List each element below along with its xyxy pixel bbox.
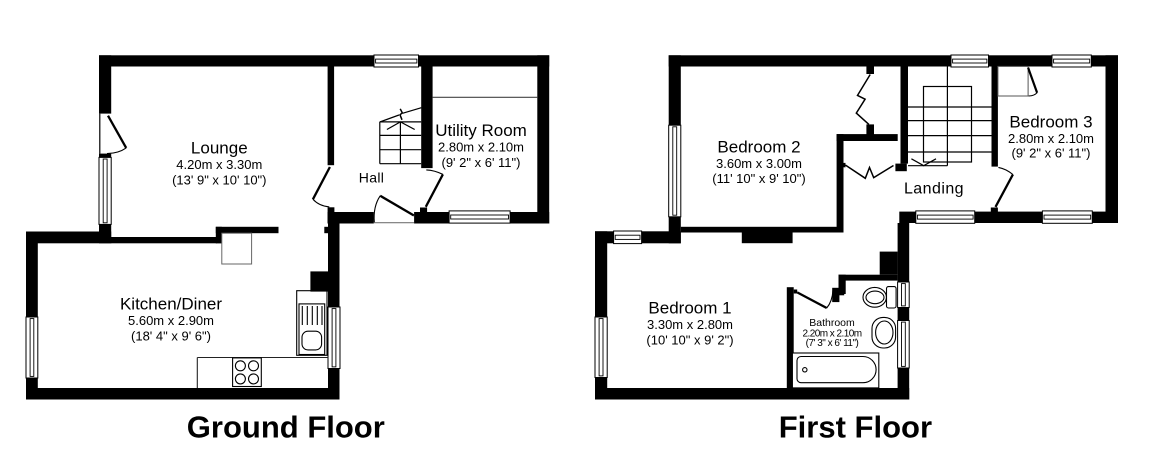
svg-text:2.80m x 2.10m: 2.80m x 2.10m — [1008, 131, 1094, 146]
svg-text:Landing: Landing — [904, 180, 964, 197]
svg-text:Bedroom 2: Bedroom 2 — [717, 138, 800, 157]
svg-text:Bedroom 3: Bedroom 3 — [1009, 112, 1092, 131]
svg-text:Lounge: Lounge — [191, 139, 248, 158]
svg-text:3.60m x 3.00m: 3.60m x 3.00m — [716, 156, 802, 171]
svg-text:(9' 2" x 6' 11"): (9' 2" x 6' 11") — [442, 155, 521, 170]
svg-text:Bathroom: Bathroom — [809, 317, 855, 329]
svg-text:First Floor: First Floor — [779, 410, 932, 445]
svg-text:3.30m x 2.80m: 3.30m x 2.80m — [647, 317, 733, 332]
svg-text:(11' 10" x 9' 10"): (11' 10" x 9' 10") — [712, 171, 805, 186]
svg-text:(9' 2" x 6' 11"): (9' 2" x 6' 11") — [1012, 146, 1091, 161]
svg-text:Hall: Hall — [359, 170, 385, 186]
svg-text:Kitchen/Diner: Kitchen/Diner — [120, 295, 222, 314]
svg-text:(7' 3" x 6' 11"): (7' 3" x 6' 11") — [806, 338, 859, 349]
svg-text:5.60m x 2.90m: 5.60m x 2.90m — [128, 313, 214, 328]
svg-text:4.20m x 3.30m: 4.20m x 3.30m — [176, 157, 262, 172]
svg-text:(13' 9" x 10' 10"): (13' 9" x 10' 10") — [172, 173, 266, 188]
svg-text:2.80m x 2.10m: 2.80m x 2.10m — [438, 139, 524, 154]
svg-text:Ground Floor: Ground Floor — [187, 410, 385, 445]
svg-text:(10' 10" x 9' 2"): (10' 10" x 9' 2") — [646, 333, 733, 348]
svg-text:Bedroom 1: Bedroom 1 — [648, 299, 731, 318]
svg-text:Utility Room: Utility Room — [435, 121, 527, 140]
svg-text:(18' 4" x 9' 6"): (18' 4" x 9' 6") — [131, 329, 211, 344]
